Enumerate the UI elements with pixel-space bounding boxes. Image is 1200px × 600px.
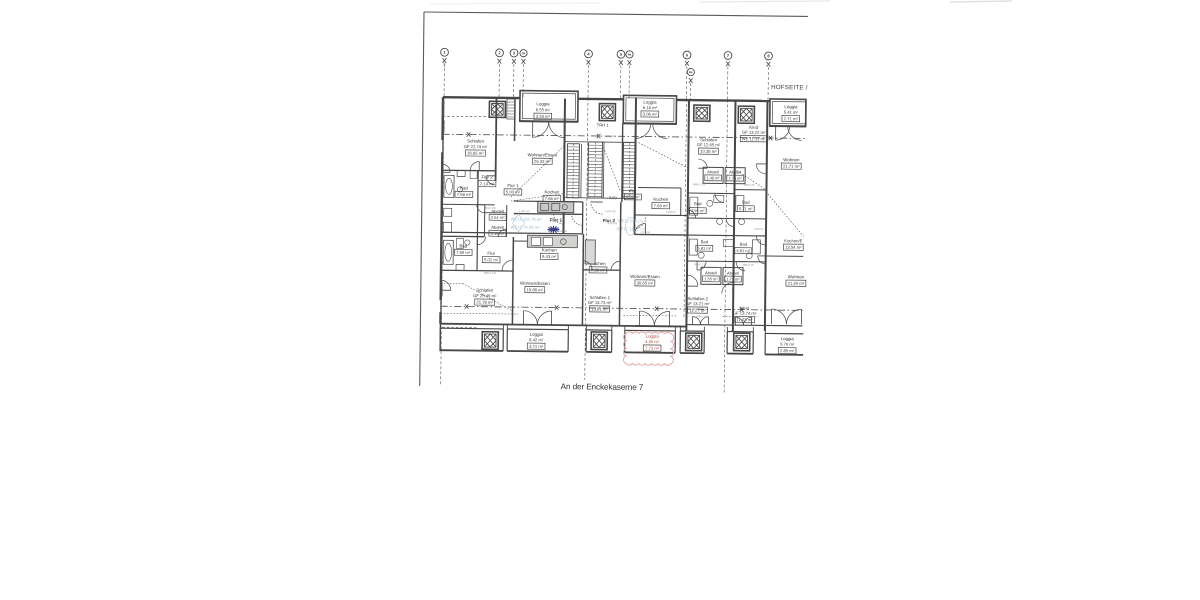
svg-text:2.14 m²: 2.14 m² xyxy=(480,181,495,186)
svg-text:Flur: Flur xyxy=(487,251,495,256)
svg-text:1.48 m²: 1.48 m² xyxy=(706,175,720,180)
svg-text:4.Pfd.06: 4.Pfd.06 xyxy=(608,221,618,225)
svg-text:3.28 m²: 3.28 m² xyxy=(536,114,551,119)
svg-text:WE12 500.03 →: WE12 500.03 → xyxy=(618,218,649,223)
svg-text:19.88 m²: 19.88 m² xyxy=(527,287,544,292)
svg-text:Flur: Flur xyxy=(629,188,637,193)
svg-text:Bad: Bad xyxy=(701,239,709,244)
svg-text:88ko2.06: 88ko2.06 xyxy=(744,183,755,187)
svg-text:6.16 m²: 6.16 m² xyxy=(643,105,658,110)
svg-text:4.80 m²: 4.80 m² xyxy=(645,339,660,344)
svg-text:5a: 5a xyxy=(628,52,632,56)
svg-text:300x100.305: 300x100.305 xyxy=(442,100,446,117)
svg-text:GF 13.22 m²: GF 13.22 m² xyxy=(742,130,766,135)
svg-text:5.81 m²: 5.81 m² xyxy=(697,246,711,251)
svg-text:Loggia: Loggia xyxy=(781,336,795,341)
svg-text:3.26 m²: 3.26 m² xyxy=(626,194,640,199)
svg-text:6.55 m²: 6.55 m² xyxy=(536,107,551,112)
svg-text:30.65 m²: 30.65 m² xyxy=(637,280,654,285)
svg-text:Flur 1: Flur 1 xyxy=(507,183,519,188)
svg-text:TRH 1: TRH 1 xyxy=(597,122,610,127)
svg-text:Schlafen: Schlafen xyxy=(467,139,485,144)
svg-text:1.55 m²: 1.55 m² xyxy=(704,276,718,281)
svg-text:5.02 m²: 5.02 m² xyxy=(484,257,499,262)
svg-text:Abstell: Abstell xyxy=(727,271,739,276)
svg-text:An der Enckekaserne 7: An der Enckekaserne 7 xyxy=(561,382,644,392)
svg-text:Abstell: Abstell xyxy=(707,169,719,174)
svg-text:7.73 m²: 7.73 m² xyxy=(645,346,660,351)
svg-text:Abstell: Abstell xyxy=(491,225,504,230)
svg-text:HOFSEITE /: HOFSEITE / xyxy=(771,84,808,91)
svg-text:Abstell: Abstell xyxy=(705,270,717,275)
svg-text:GF 13.74 m²: GF 13.74 m² xyxy=(733,311,757,316)
svg-text:Bad: Bad xyxy=(742,200,750,205)
svg-text:88ko2.06: 88ko2.06 xyxy=(743,263,754,267)
svg-text:Loggia: Loggia xyxy=(643,100,657,105)
svg-text:8.42 m²: 8.42 m² xyxy=(529,337,544,342)
svg-text:Kochen: Kochen xyxy=(542,247,558,252)
svg-text:1.Pfd.06: 1.Pfd.06 xyxy=(753,227,763,231)
svg-text:Bad: Bad xyxy=(740,242,748,247)
svg-text:41ko2.06: 41ko2.06 xyxy=(606,134,617,138)
svg-text:1.Pfd.135: 1.Pfd.135 xyxy=(605,209,617,213)
svg-text:5.70 m²: 5.70 m² xyxy=(780,342,795,347)
svg-text:13.81 m²: 13.81 m² xyxy=(591,306,608,311)
svg-text:21.78 m²: 21.78 m² xyxy=(476,300,493,305)
svg-text:→3.60: →3.60 xyxy=(605,195,618,200)
svg-text:GF 13.73 m²: GF 13.73 m² xyxy=(588,300,612,305)
svg-text:3.21 m²: 3.21 m² xyxy=(529,344,544,349)
svg-text:Loggia: Loggia xyxy=(784,104,798,109)
svg-text:Loggia: Loggia xyxy=(530,332,544,337)
svg-text:Abstell: Abstell xyxy=(729,170,741,175)
svg-text:26.33 m²: 26.33 m² xyxy=(534,159,551,164)
svg-text:1.Pfd.06: 1.Pfd.06 xyxy=(640,230,650,234)
svg-text:13.54 m²: 13.54 m² xyxy=(785,245,802,250)
svg-text:Wohnen/Essen: Wohnen/Essen xyxy=(527,152,557,157)
svg-text:21.71 m²: 21.71 m² xyxy=(783,164,800,169)
svg-text:Kochen: Kochen xyxy=(544,189,560,194)
svg-text:7.36 m²: 7.36 m² xyxy=(591,267,606,272)
svg-text:2.85 m²: 2.85 m² xyxy=(780,348,795,353)
svg-text:Wohnen: Wohnen xyxy=(783,157,800,162)
svg-text:GF 13.21 m²: GF 13.21 m² xyxy=(686,301,710,306)
svg-text:9.43 m²: 9.43 m² xyxy=(542,254,557,259)
svg-text:6a: 6a xyxy=(689,70,693,74)
svg-text:Loggia: Loggia xyxy=(646,334,660,339)
svg-text:Flur 1: Flur 1 xyxy=(550,217,563,222)
svg-text:2.64 m²: 2.64 m² xyxy=(491,215,505,220)
svg-text:Loggia: Loggia xyxy=(536,101,550,106)
svg-text:5.00 m²: 5.00 m² xyxy=(506,189,521,194)
svg-text:GF 22.74 m²: GF 22.74 m² xyxy=(464,144,488,149)
svg-text:Wohnen: Wohnen xyxy=(788,274,805,279)
svg-text:7.69 m²: 7.69 m² xyxy=(654,203,669,208)
svg-text:5.41 m²: 5.41 m² xyxy=(784,110,799,115)
svg-text:Wohnen/Essen: Wohnen/Essen xyxy=(630,274,660,279)
svg-text:3.06 m²: 3.06 m² xyxy=(643,112,658,117)
svg-text:16.85 m²: 16.85 m² xyxy=(467,151,484,156)
svg-text:88ko2.06: 88ko2.06 xyxy=(696,314,707,318)
svg-text:1.75 m²: 1.75 m² xyxy=(728,176,742,181)
svg-text:Kochen: Kochen xyxy=(653,197,669,202)
svg-text:L.Pfd.06: L.Pfd.06 xyxy=(557,229,567,233)
svg-text:6.71 m²: 6.71 m² xyxy=(739,206,753,211)
svg-text:88ko2.135: 88ko2.135 xyxy=(484,271,497,275)
svg-text:5.005: 5.005 xyxy=(442,60,446,67)
svg-text:10.38 m²: 10.38 m² xyxy=(700,149,717,154)
svg-text:1.77 m²: 1.77 m² xyxy=(726,277,740,282)
svg-text:Wohnen/Essen: Wohnen/Essen xyxy=(520,281,550,286)
svg-text:GF 12.65 m²: GF 12.65 m² xyxy=(697,142,721,147)
svg-text:88ko2.135: 88ko2.135 xyxy=(693,182,706,186)
svg-text:7.68 m²: 7.68 m² xyxy=(457,192,472,197)
svg-text:2.71 m²: 2.71 m² xyxy=(784,116,799,121)
svg-text:7.65 m²: 7.65 m² xyxy=(456,250,471,255)
svg-text:11.27 m²: 11.27 m² xyxy=(689,308,706,313)
svg-text:21.40 m²: 21.40 m² xyxy=(788,281,805,286)
svg-text:1.Pfd.06: 1.Pfd.06 xyxy=(666,210,676,214)
svg-text:7.66 m²: 7.66 m² xyxy=(545,196,560,201)
svg-text:WE 11.11 m²: WE 11.11 m² xyxy=(742,136,766,141)
svg-text:6.81 m²: 6.81 m² xyxy=(736,248,750,253)
svg-text:3a: 3a xyxy=(522,51,526,55)
svg-text:Kochen/E: Kochen/E xyxy=(784,238,802,243)
svg-text:1.Pfd.135: 1.Pfd.135 xyxy=(519,209,531,213)
svg-text:68ko2.135: 68ko2.135 xyxy=(484,206,497,210)
svg-text:98ko2.135: 98ko2.135 xyxy=(694,262,707,266)
svg-text:Bad: Bad xyxy=(460,185,468,190)
